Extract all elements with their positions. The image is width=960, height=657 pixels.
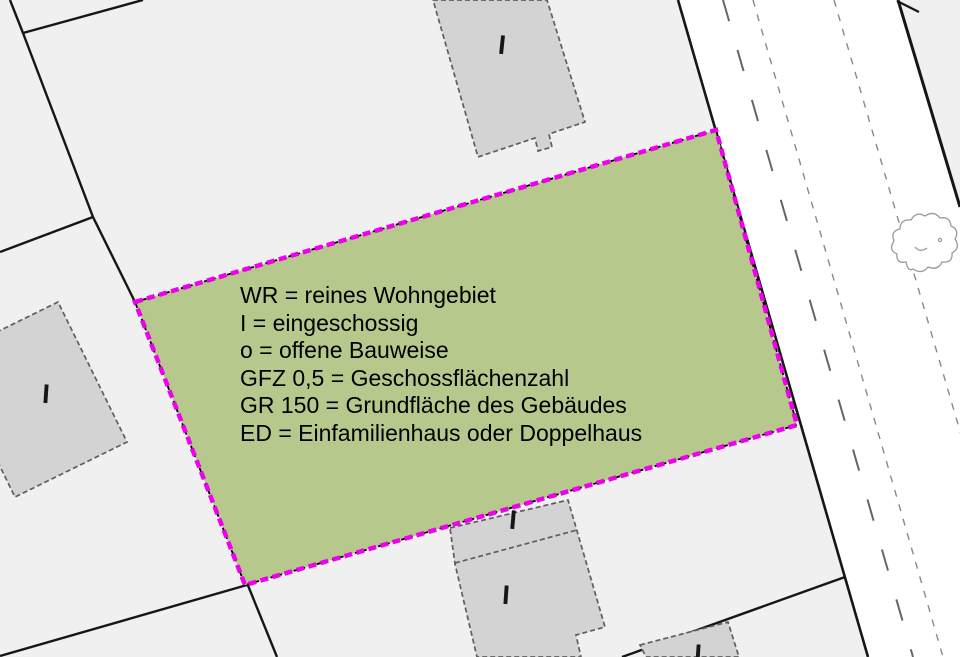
building-storey-label: I (39, 381, 53, 409)
building-footprint-bottom-complex (450, 500, 605, 657)
building-footprint-left (0, 302, 127, 497)
legend-line-gr: GR 150 = Grundfläche des Gebäudes (240, 392, 642, 420)
parcel-boundary-line (0, 217, 93, 252)
legend-line-bauweise: o = offene Bauweise (240, 337, 642, 365)
legend-line-ed: ED = Einfamilienhaus oder Doppelhaus (240, 420, 642, 448)
building-storey-label: I (499, 582, 513, 610)
parcel-boundary-line (23, 0, 143, 33)
parcel-boundary-line (0, 585, 247, 656)
building-storey-label: I (506, 507, 520, 535)
legend-line-wr: WR = reines Wohngebiet (240, 282, 642, 310)
building-footprint-bottom-right (640, 622, 739, 657)
legend-text-block: WR = reines Wohngebiet I = eingeschossig… (240, 282, 642, 448)
legend-line-storeys: I = eingeschossig (240, 310, 642, 338)
building-footprint-top (433, 0, 585, 157)
building-storey-label: I (691, 641, 705, 657)
parcel-boundary-line (247, 583, 277, 657)
parcel-boundary-line (10, 0, 23, 33)
zoning-map: WR = reines Wohngebiet I = eingeschossig… (0, 0, 960, 657)
legend-line-gfz: GFZ 0,5 = Geschossflächenzahl (240, 365, 642, 393)
parcel-boundary-line (23, 33, 135, 302)
